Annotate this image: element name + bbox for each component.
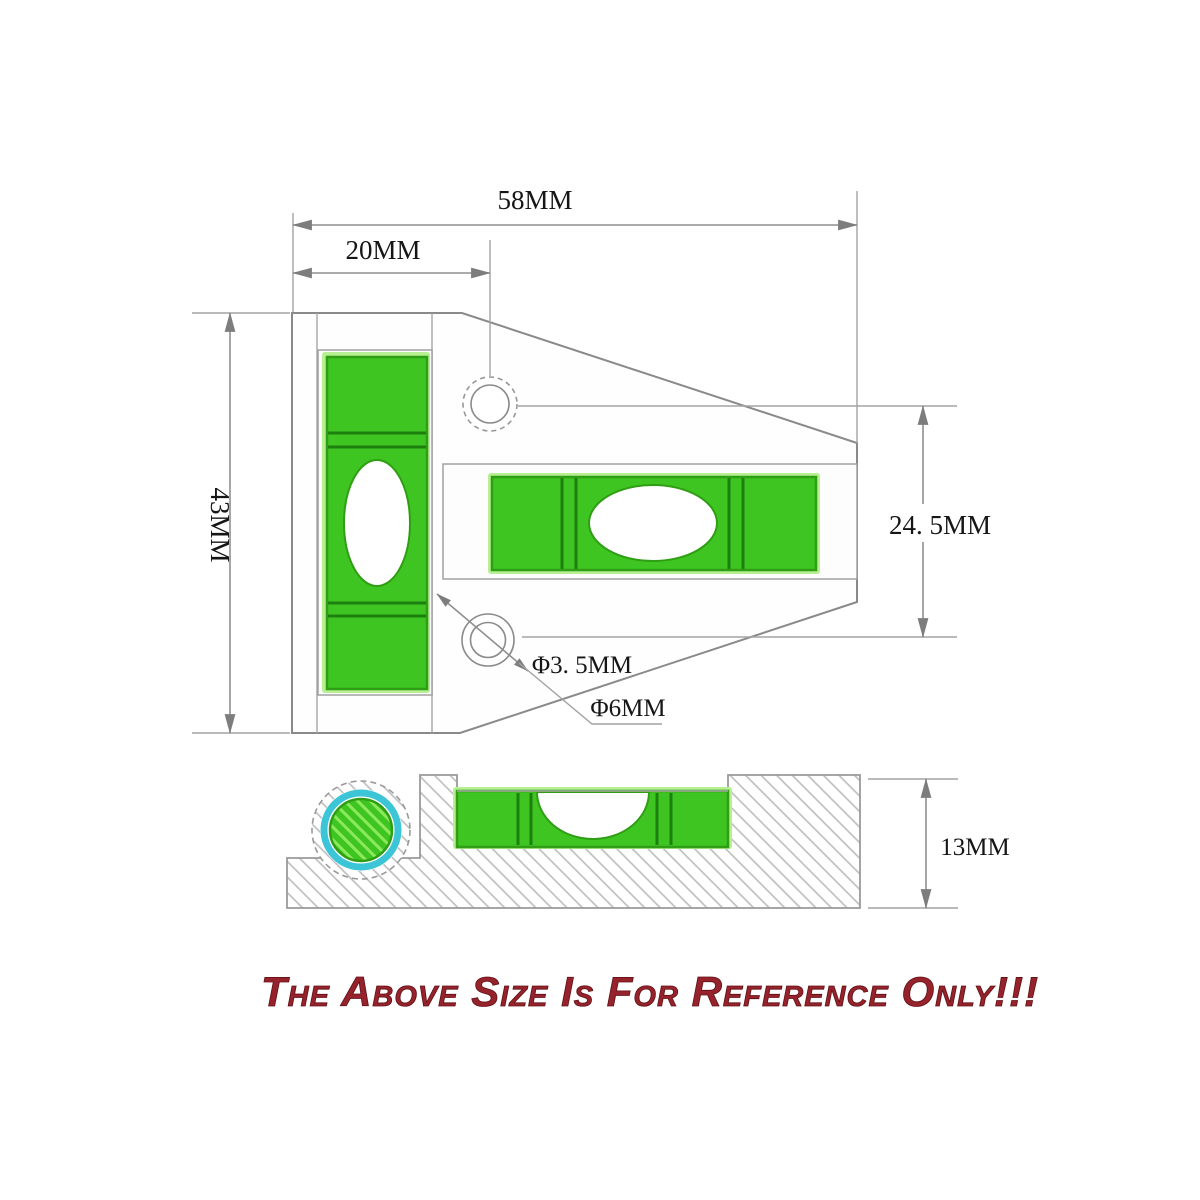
vial-bubble	[344, 460, 410, 586]
dim-43mm-label: 43MM	[205, 487, 235, 562]
vial-bubble	[589, 485, 717, 561]
side-vial	[453, 787, 732, 849]
horizontal-vial	[443, 464, 857, 579]
side-view: 13MM	[287, 775, 1010, 908]
hole-inner	[471, 385, 509, 423]
product-dimension-image: 58MM 20MM 43MM 24. 5MM Φ3. 5MM Φ6MM	[0, 0, 1200, 1200]
green-lens	[330, 799, 392, 861]
dim-24-5mm-label: 24. 5MM	[889, 510, 991, 540]
reference-note: The Above Size Is For Reference Only!!!	[261, 968, 1039, 1015]
dimension-drawing-svg: 58MM 20MM 43MM 24. 5MM Φ3. 5MM Φ6MM	[0, 0, 1200, 1200]
dim-13mm-label: 13MM	[940, 834, 1009, 861]
dia-3-5mm-label: Φ3. 5MM	[532, 652, 632, 679]
circular-vial	[312, 781, 410, 879]
top-view: 58MM 20MM 43MM 24. 5MM Φ3. 5MM Φ6MM	[192, 185, 1006, 733]
dia-6mm-label: Φ6MM	[590, 695, 665, 722]
dim-58mm-label: 58MM	[497, 185, 572, 215]
dim-20mm-label: 20MM	[345, 235, 420, 265]
screw-hole-top	[463, 377, 517, 431]
vertical-vial	[318, 350, 432, 695]
